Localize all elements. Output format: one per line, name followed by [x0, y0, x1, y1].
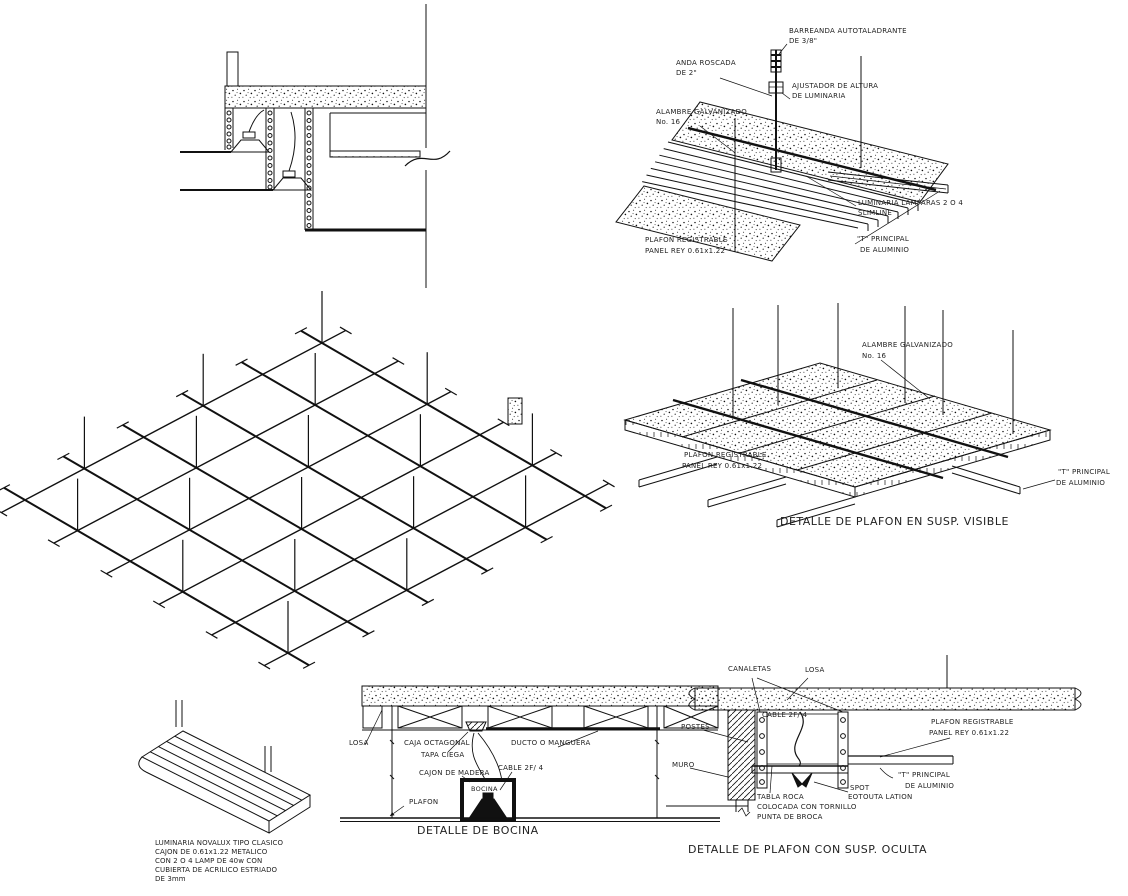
label-cable-bocina: CABLE 2F/ 4 [498, 765, 543, 772]
label-ajustador-line1: AJUSTADOR DE ALTURA [792, 83, 878, 90]
label-spot-line2: EOTOUTA LATION [848, 794, 912, 801]
label-alambre-mr-line2: No. 16 [862, 353, 886, 360]
label-spot-line1: SPOT [850, 785, 869, 792]
label-alambre-tr-line1: ALAMBRE GALVANIZADO [656, 109, 747, 116]
label-plafon-tr-line1: PLAFON REGISTRABLE [645, 237, 728, 244]
label-ducto: DUCTO O MANGUERA [511, 740, 591, 747]
label-plafon-mr-line1: PLAFON REGISTRABLE [684, 452, 767, 459]
label-plafon-mr-line2: PANEL REY 0.61x1.22 [682, 463, 762, 470]
label-plafon-bocina: PLAFON [409, 799, 438, 806]
stipple-fragment [508, 398, 522, 424]
label-cable-oculta: CABLE 2F/ 4 [762, 712, 807, 719]
luminaire-drawing [139, 700, 310, 833]
label-tablaroca-line2: COLOCADA CON TORNILLO [757, 804, 857, 811]
grid-isometric-drawing [0, 291, 615, 669]
luminaire-note-line3: CON 2 O 4 LAMP DE 40w CON [155, 858, 262, 865]
label-tprincipal-oculta-line1: "T" PRINCIPAL [898, 772, 950, 779]
hidden-suspension-drawing [666, 655, 1081, 816]
bocina-drawing [340, 686, 720, 822]
label-losa-oculta: LOSA [805, 667, 825, 674]
label-tablaroca-line1: TABLA ROCA [757, 794, 804, 801]
label-tprincipal-tr-line2: DE ALUMINIO [860, 247, 909, 254]
label-tprincipal-tr-line1: "T" PRINCIPAL [857, 236, 909, 243]
label-ajustador-line2: DE LUMINARIA [792, 93, 846, 100]
title-bocina: DETALLE DE BOCINA [417, 824, 539, 837]
label-postes: POSTES [681, 724, 710, 731]
label-muro: MURO [672, 762, 695, 769]
label-anda-roscada-line1: ANDA ROSCADA [676, 60, 736, 67]
label-alambre-mr-line1: ALAMBRE GALVANIZADO [862, 342, 953, 349]
label-plafon-oculta-line2: PANEL REY 0.61x1.22 [929, 730, 1009, 737]
cad-ceiling-details-sheet: BARREANDA AUTOTALADRANTE DE 3/8" ANDA RO… [0, 0, 1128, 896]
suspension-assembly-drawing [616, 44, 948, 261]
cad-linework [0, 0, 1128, 896]
label-alambre-tr-line2: No. 16 [656, 119, 680, 126]
label-luminaria-line2: SLIMLINE [858, 210, 892, 217]
section-detail-drawing [180, 4, 450, 288]
luminaire-note-line4: CUBIERTA DE ACRILICO ESTRIADO [155, 867, 277, 874]
label-bocina: BOCINA [471, 786, 498, 793]
label-plafon-tr-line2: PANEL REY 0.61x1.22 [645, 248, 725, 255]
label-cajon-madera: CAJON DE MADERA [419, 770, 490, 777]
title-susp-oculta: DETALLE DE PLAFON CON SUSP. OCULTA [688, 843, 927, 856]
label-barreanda-line2: DE 3/8" [789, 38, 817, 45]
label-tprincipal-mr-line2: DE ALUMINIO [1056, 480, 1105, 487]
luminaire-note-line2: CAJON DE 0.61x1.22 METALICO [155, 849, 267, 856]
label-canaletas: CANALETAS [728, 666, 771, 673]
label-anda-roscada-line2: DE 2" [676, 70, 697, 77]
luminaire-note-line1: LUMINARIA NOVALUX TIPO CLASICO [155, 840, 283, 847]
visible-suspension-drawing [625, 303, 1055, 527]
title-susp-visible: DETALLE DE PLAFON EN SUSP. VISIBLE [780, 515, 1009, 528]
label-caja-octagonal-line2: TAPA CIEGA [421, 752, 464, 759]
label-caja-octagonal-line1: CAJA OCTAGONAL [404, 740, 470, 747]
label-plafon-oculta-line1: PLAFON REGISTRABLE [931, 719, 1014, 726]
label-tprincipal-oculta-line2: DE ALUMINIO [905, 783, 954, 790]
label-luminaria-line1: LUMINARIA LAMPARAS 2 O 4 [858, 200, 963, 207]
luminaire-note-line5: DE 3mm [155, 876, 186, 883]
label-tablaroca-line3: PUNTA DE BROCA [757, 814, 823, 821]
label-barreanda-line1: BARREANDA AUTOTALADRANTE [789, 28, 907, 35]
label-tprincipal-mr-line1: "T" PRINCIPAL [1058, 469, 1110, 476]
label-losa-bocina: LOSA [349, 740, 369, 747]
